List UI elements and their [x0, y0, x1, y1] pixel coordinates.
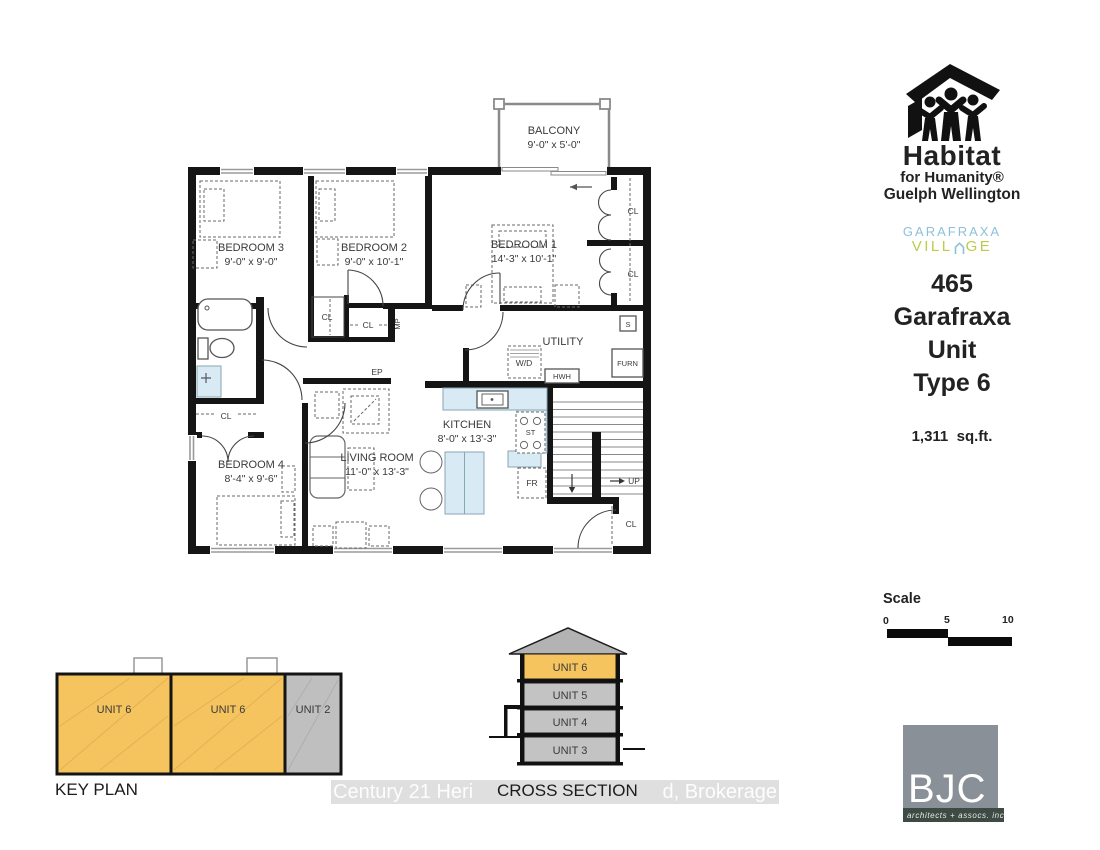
svg-text:EP: EP — [371, 367, 383, 377]
bath-sink-icon — [197, 366, 221, 397]
bedroom1-label: BEDROOM 1 — [491, 239, 557, 251]
toilet-icon — [198, 338, 208, 359]
sheet-title: 465 Garafraxa Unit Type 6 — [858, 268, 1046, 400]
bjc-logo: BJC — [903, 725, 998, 808]
svg-text:W/D: W/D — [516, 358, 533, 368]
title-line-2: Garafraxa — [858, 301, 1046, 334]
cross-section: UNIT 6 UNIT 5 UNIT 4 UNIT 3 — [488, 624, 648, 774]
cross-section-title: CROSS SECTION — [497, 781, 638, 801]
drawing-sheet: BALCONY 9'-0" x 5'-0" BEDROOM 3 9'-0" x … — [0, 0, 1100, 850]
key-plan: UNIT 6 UNIT 6 UNIT 2 — [50, 648, 350, 780]
svg-text:UNIT 6: UNIT 6 — [553, 662, 588, 674]
village-logo-line2: VILL GE — [860, 238, 1044, 255]
svg-text:9'-0" x 5'-0": 9'-0" x 5'-0" — [528, 139, 581, 151]
scale-label: Scale — [883, 591, 921, 607]
svg-text:9'-0" x 10'-1": 9'-0" x 10'-1" — [345, 256, 404, 268]
svg-text:UNIT 2: UNIT 2 — [296, 704, 331, 716]
stool-icon — [420, 488, 442, 510]
svg-text:CL: CL — [322, 312, 333, 322]
watermark-left: Century 21 Heri — [333, 781, 473, 804]
floor-plan: BALCONY 9'-0" x 5'-0" BEDROOM 3 9'-0" x … — [183, 93, 655, 560]
title-line-1: 465 — [858, 268, 1046, 301]
svg-text:CL: CL — [628, 206, 639, 216]
svg-text:CL: CL — [363, 320, 374, 330]
svg-text:CL: CL — [626, 519, 637, 529]
svg-text:8'-0" x 13'-3": 8'-0" x 13'-3" — [438, 433, 497, 445]
title-line-4: Type 6 — [858, 367, 1046, 400]
unit-area: 1,311 sq.ft. — [858, 428, 1046, 445]
svg-text:CL: CL — [221, 411, 232, 421]
village-post: GE — [966, 238, 993, 255]
scale-bar-segment-2 — [948, 637, 1012, 646]
svg-text:CL: CL — [628, 269, 639, 279]
scale-tick-5: 5 — [944, 614, 950, 626]
habitat-sub: for Humanity® — [860, 169, 1044, 186]
svg-text:MP: MP — [393, 318, 402, 329]
watermark-right: d, Brokerage — [662, 781, 777, 804]
stool-icon — [420, 451, 442, 473]
svg-text:11'-0" x 13'-3": 11'-0" x 13'-3" — [345, 466, 409, 478]
bathroom — [197, 299, 252, 397]
svg-text:UNIT 5: UNIT 5 — [553, 690, 588, 702]
svg-text:UNIT 3: UNIT 3 — [553, 745, 588, 757]
living-room-label: LIVING ROOM — [340, 452, 413, 464]
sliding-door — [501, 166, 607, 190]
bedroom4-label: BEDROOM 4 — [218, 459, 284, 471]
village-logo-line1: GARAFRAXA — [860, 224, 1044, 239]
svg-text:UNIT 4: UNIT 4 — [553, 717, 588, 729]
bjc-tagline: architects + assocs. inc. — [903, 811, 1007, 820]
utility-label: UTILITY — [543, 336, 585, 348]
svg-text:9'-0" x 9'-0": 9'-0" x 9'-0" — [225, 256, 278, 268]
svg-text:UP: UP — [628, 476, 640, 486]
svg-text:8'-4" x 9'-6": 8'-4" x 9'-6" — [225, 473, 278, 485]
habitat-region: Guelph Wellington — [860, 186, 1044, 204]
scale-bar-segment-1 — [887, 629, 948, 638]
svg-text:HWH: HWH — [553, 372, 571, 381]
habitat-wordmark: Habitat — [860, 140, 1044, 172]
svg-text:UNIT 6: UNIT 6 — [211, 704, 246, 716]
roof — [509, 628, 627, 654]
bedroom3-label: BEDROOM 3 — [218, 242, 284, 254]
bjc-initials: BJC — [903, 770, 987, 808]
svg-text:UNIT 6: UNIT 6 — [97, 704, 132, 716]
balcony-label: BALCONY — [528, 125, 581, 137]
svg-text:14'-3" x 10'-1": 14'-3" x 10'-1" — [492, 253, 557, 265]
bed-icon — [316, 181, 394, 237]
scale-tick-10: 10 — [1002, 614, 1014, 626]
kitchen-fixtures — [420, 388, 547, 514]
svg-text:FR: FR — [526, 478, 537, 488]
house-a-icon — [954, 242, 965, 255]
svg-text:S: S — [625, 320, 630, 329]
bed-icon — [217, 496, 295, 545]
bathtub-icon — [198, 299, 252, 330]
svg-text:FURN: FURN — [617, 359, 638, 368]
svg-text:ST: ST — [526, 428, 536, 437]
title-line-3: Unit — [858, 334, 1046, 367]
bedroom2-label: BEDROOM 2 — [341, 242, 407, 254]
sofa-icon — [310, 436, 345, 498]
utility-fixtures — [508, 316, 643, 383]
key-plan-title: KEY PLAN — [55, 780, 138, 800]
scale-tick-0: 0 — [883, 615, 889, 627]
habitat-logo-icon — [900, 56, 1004, 144]
village-pre: VILL — [912, 238, 953, 255]
kitchen-label: KITCHEN — [443, 419, 491, 431]
bjc-tagline-bar: architects + assocs. inc. — [903, 808, 1004, 822]
